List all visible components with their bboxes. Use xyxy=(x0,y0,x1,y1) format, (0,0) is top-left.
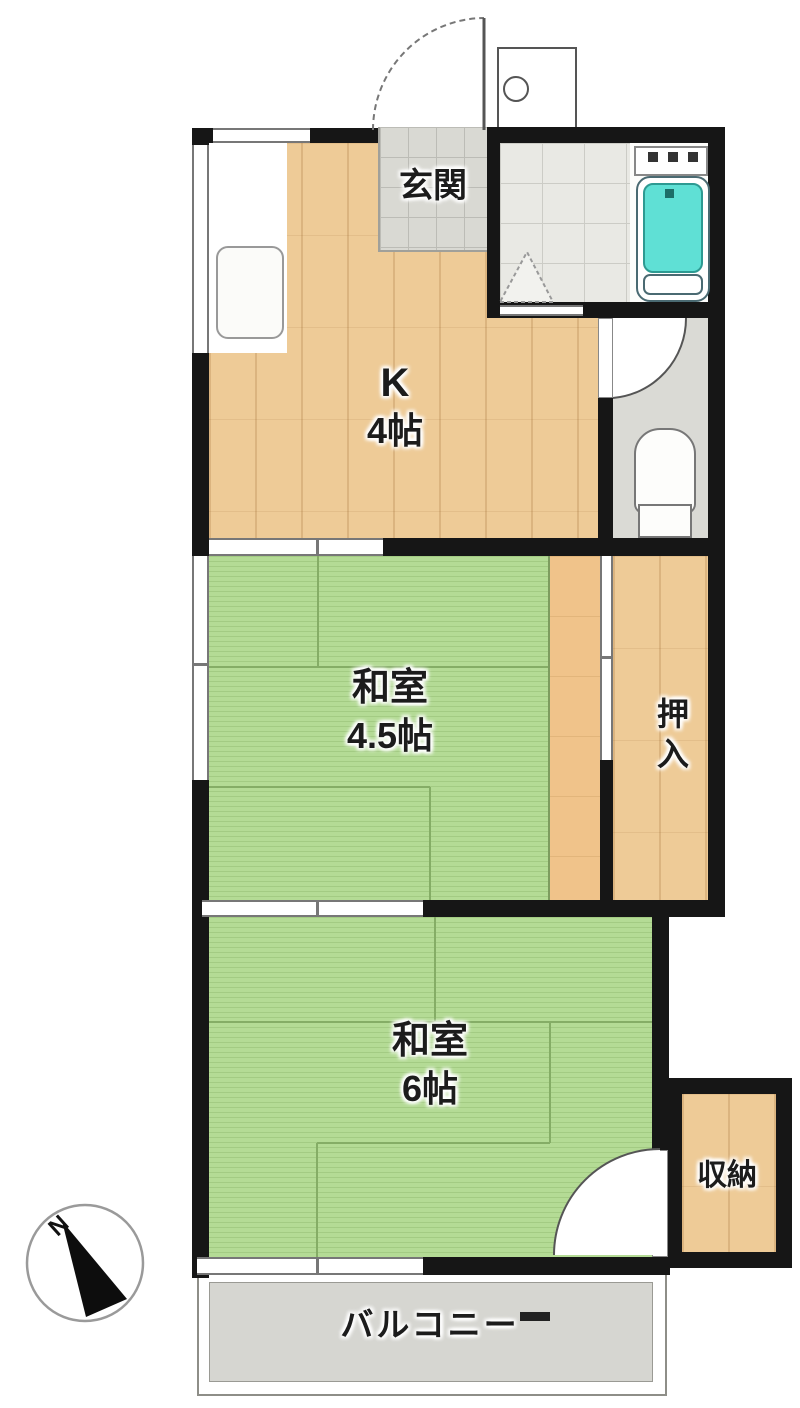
japanese-room-6-label: 和室 6帖 xyxy=(320,1018,540,1111)
kitchen-name: K xyxy=(300,358,490,408)
storage-label: 収納 xyxy=(676,1150,778,1194)
storage-door-swing xyxy=(554,1149,660,1255)
japanese-room-4_5-label: 和室 4.5帖 xyxy=(275,665,505,758)
japanese-room-6-name: 和室 xyxy=(320,1018,540,1066)
entrance-door-arc xyxy=(373,18,484,130)
compass-needle xyxy=(62,1221,127,1317)
oshiire-label: 押入 xyxy=(634,662,694,812)
balcony-label: バルコニー xyxy=(270,1298,590,1346)
genkan-label: 玄関 xyxy=(378,158,488,207)
kitchen-label: K 4帖 xyxy=(300,358,490,453)
compass: N xyxy=(27,1205,143,1321)
floor-plan: N 玄関 K 4帖 和室 4.5帖 押入 和室 6帖 収納 バルコニー xyxy=(0,0,800,1408)
japanese-room-4_5-size: 4.5帖 xyxy=(275,713,505,758)
genkan-step-triangle xyxy=(500,252,553,302)
japanese-room-4_5-name: 和室 xyxy=(275,665,505,713)
kitchen-size: 4帖 xyxy=(300,408,490,453)
japanese-room-6-size: 6帖 xyxy=(320,1066,540,1111)
